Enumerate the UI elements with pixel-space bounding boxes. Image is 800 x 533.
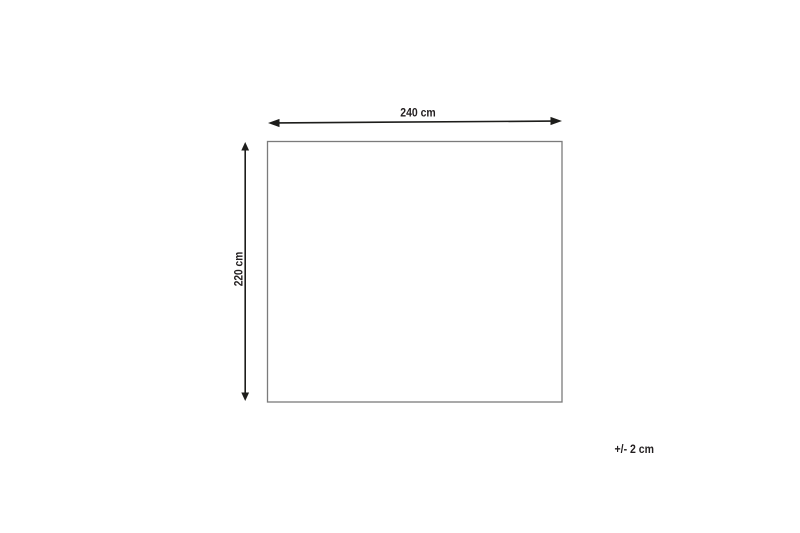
svg-text:220 cm: 220 cm [232,252,246,287]
svg-text:240 cm: 240 cm [400,106,436,120]
svg-text:+/- 2 cm: +/- 2 cm [615,442,655,456]
